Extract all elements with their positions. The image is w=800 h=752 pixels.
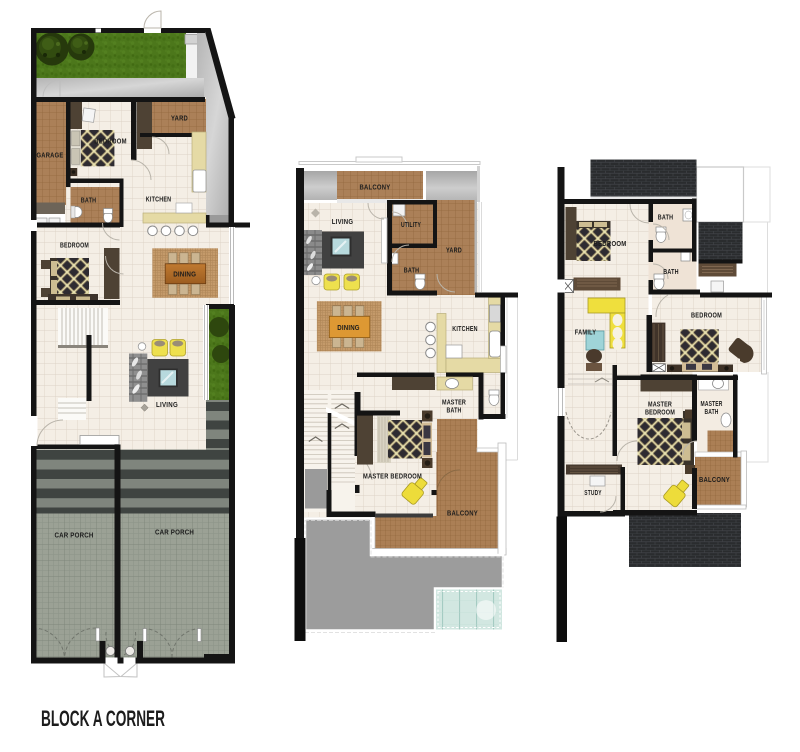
- svg-text:BEDROOM: BEDROOM: [60, 241, 89, 250]
- svg-text:BATH: BATH: [658, 213, 674, 222]
- svg-text:LIVING: LIVING: [156, 400, 178, 409]
- svg-text:YARD: YARD: [446, 246, 462, 255]
- svg-text:BALCONY: BALCONY: [447, 509, 478, 518]
- svg-text:MASTER: MASTER: [442, 400, 466, 407]
- svg-text:FAMILY: FAMILY: [575, 328, 597, 337]
- svg-text:MASTER: MASTER: [701, 401, 723, 408]
- svg-text:BEDROOM: BEDROOM: [594, 239, 627, 248]
- svg-text:KITCHEN: KITCHEN: [146, 195, 172, 204]
- svg-text:STUDY: STUDY: [584, 488, 602, 497]
- svg-text:DINING: DINING: [337, 325, 360, 332]
- svg-text:BALCONY: BALCONY: [360, 183, 391, 192]
- svg-text:GARAGE: GARAGE: [37, 151, 64, 160]
- svg-text:BATH: BATH: [81, 196, 97, 205]
- svg-text:MASTER BEDROOM: MASTER BEDROOM: [363, 472, 422, 481]
- svg-text:BEDROOM: BEDROOM: [94, 137, 127, 146]
- svg-text:BATH: BATH: [447, 408, 462, 415]
- svg-text:KITCHEN: KITCHEN: [452, 324, 478, 333]
- svg-text:LIVING: LIVING: [332, 217, 354, 226]
- svg-text:UTILITY: UTILITY: [401, 222, 421, 229]
- svg-text:CAR PORCH: CAR PORCH: [155, 530, 194, 537]
- svg-text:DINING: DINING: [173, 272, 196, 279]
- svg-text:BEDROOM: BEDROOM: [691, 311, 722, 320]
- svg-text:BATH: BATH: [404, 266, 420, 275]
- svg-text:CAR PORCH: CAR PORCH: [55, 533, 94, 540]
- svg-text:BLOCK A CORNER: BLOCK A CORNER: [41, 706, 165, 731]
- svg-text:BEDROOM: BEDROOM: [645, 410, 675, 417]
- svg-text:BATH: BATH: [663, 267, 679, 276]
- svg-text:MASTER: MASTER: [648, 402, 672, 409]
- svg-text:YARD: YARD: [171, 114, 188, 123]
- svg-text:BALCONY: BALCONY: [699, 475, 730, 484]
- svg-text:BATH: BATH: [705, 409, 719, 416]
